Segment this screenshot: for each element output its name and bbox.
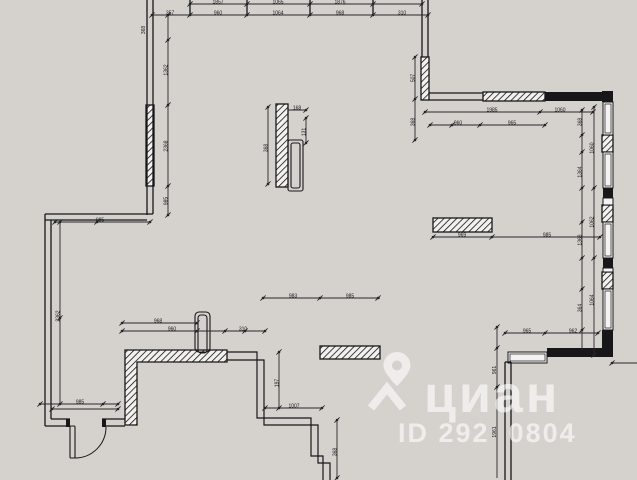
dimension-text: 197 xyxy=(275,379,281,388)
dimension-text: 1857 xyxy=(212,0,223,6)
window xyxy=(603,222,613,258)
solid-wall xyxy=(545,92,607,101)
dimension-text: 1064 xyxy=(590,294,596,305)
hatched-wall xyxy=(125,350,227,425)
door-swing-arc xyxy=(75,427,106,458)
dimension-text: 1062 xyxy=(590,216,596,227)
dimension-text: 310 xyxy=(398,11,407,17)
dimension-text: 368 xyxy=(578,118,584,127)
floor-plan: 1857106518763579601064968310136223689853… xyxy=(0,0,637,480)
floor-plan-page: 1857106518763579601064968310136223689853… xyxy=(0,0,637,480)
dimension-text: 960 xyxy=(214,11,223,17)
dimension-text: 985 xyxy=(164,197,170,206)
dimension-text: 969 xyxy=(458,233,467,239)
solid-wall xyxy=(602,91,613,102)
dimension-text: 1060 xyxy=(554,108,565,114)
dimension-text: 965 xyxy=(508,121,517,127)
dimension-text: 1364 xyxy=(578,166,584,177)
solid-wall xyxy=(603,258,613,268)
window xyxy=(603,198,613,205)
window xyxy=(508,352,547,363)
hatched-wall xyxy=(276,104,288,187)
dimension-text: 368 xyxy=(141,26,147,35)
dimension-text: 507 xyxy=(411,74,417,83)
dimension-text: 1362 xyxy=(164,64,170,75)
dimension-text: 1060 xyxy=(590,142,596,153)
dimension-text: 357 xyxy=(166,11,175,17)
dimension-text: 1064 xyxy=(272,11,283,17)
dimension-text: 1961 xyxy=(492,426,498,437)
dimension-text: 965 xyxy=(523,329,532,335)
duct-shaft-inner xyxy=(291,143,300,188)
hatched-wall xyxy=(483,92,545,101)
dimension-text: 1065 xyxy=(272,0,283,6)
dimension-text: 985 xyxy=(346,294,355,300)
dimension-text: 168 xyxy=(293,106,302,112)
hatched-wall xyxy=(320,346,380,359)
hatched-wall xyxy=(602,205,613,222)
dimension-text: 985 xyxy=(76,400,85,406)
hatched-wall xyxy=(602,272,613,289)
dimension-text: 960 xyxy=(454,121,463,127)
hatched-wall xyxy=(602,135,613,152)
wall-polyline xyxy=(227,352,323,480)
dimension-text: 364 xyxy=(578,304,584,313)
dimension-text: 961 xyxy=(492,366,498,375)
hatched-wall xyxy=(433,218,492,232)
hatched-wall xyxy=(421,57,429,100)
dimension-text: 2362 xyxy=(56,310,62,321)
solid-wall xyxy=(547,348,613,357)
dimension-text: 368 xyxy=(264,144,270,153)
dimension-text: 960 xyxy=(168,327,177,333)
dimension-text: 1007 xyxy=(288,404,299,410)
dimension-text: 1368 xyxy=(578,234,584,245)
dimension-text: 1985 xyxy=(486,108,497,114)
duct-shaft xyxy=(288,140,303,191)
dimension-text: 985 xyxy=(543,233,552,239)
wall-polyline xyxy=(227,360,330,480)
dimension-text: 962 xyxy=(569,329,578,335)
dimension-text: 368 xyxy=(411,118,417,127)
dimension-text: 2368 xyxy=(164,140,170,151)
dimension-text: 985 xyxy=(96,218,105,224)
dimension-text: 1876 xyxy=(334,0,345,6)
dimension-text: 310 xyxy=(239,327,248,333)
window xyxy=(603,268,613,272)
window xyxy=(603,152,613,188)
window xyxy=(603,102,613,135)
dimension-text: 131 xyxy=(302,128,308,137)
dimension-text: 983 xyxy=(289,294,298,300)
dimension-text: 368 xyxy=(333,448,339,457)
dimension-text: 968 xyxy=(336,11,345,17)
dimension-text: 968 xyxy=(154,319,163,325)
window xyxy=(603,289,613,330)
solid-wall xyxy=(603,188,613,198)
door-leaf xyxy=(70,426,75,458)
